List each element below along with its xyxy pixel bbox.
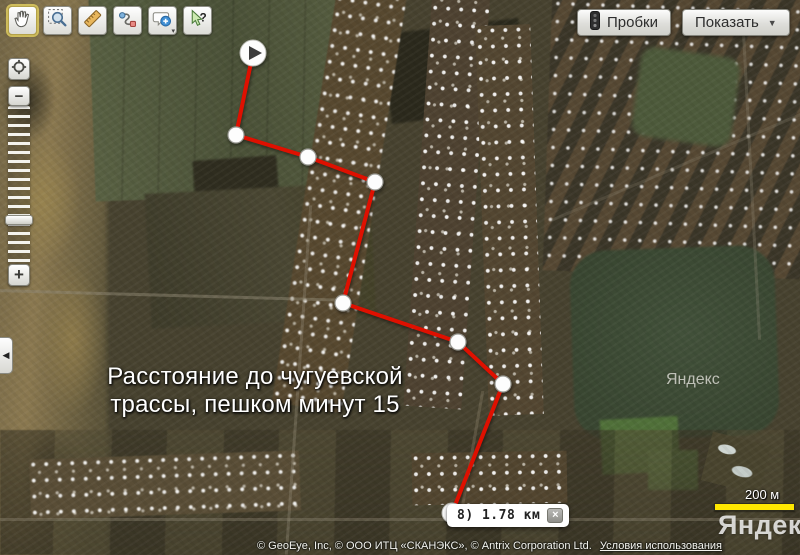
zoom-slider-track[interactable] [8, 106, 30, 264]
help-cursor-icon: ? [187, 8, 208, 34]
panel-collapse-button[interactable]: ◀ [0, 337, 13, 374]
satellite-imagery[interactable] [0, 0, 800, 555]
caption-line-2: трассы, пешком минут 15 [55, 391, 455, 419]
tool-select-zoom-button[interactable] [43, 6, 72, 35]
attribution: © GeoEye, Inc, © ООО ИТЦ «СКАНЭКС», © An… [257, 540, 722, 552]
tool-pan-button[interactable] [8, 6, 37, 35]
svg-text:?: ? [200, 12, 207, 24]
caption-line-1: Расстояние до чугуевской [55, 363, 455, 391]
scale-label: 200 м [745, 487, 779, 502]
zoom-out-button[interactable]: − [8, 86, 30, 106]
show-button-label: Показать [695, 14, 759, 31]
tool-help-button[interactable]: ? [183, 6, 212, 35]
yandex-logo: Яндекс [718, 510, 800, 541]
traffic-light-icon [590, 11, 600, 34]
yandex-map-watermark: Яндекс [666, 371, 720, 389]
close-icon[interactable]: × [547, 508, 563, 523]
zoom-in-button[interactable]: + [8, 264, 30, 286]
ruler-icon [82, 8, 103, 34]
route-icon [117, 8, 138, 34]
locate-button[interactable] [8, 58, 30, 80]
locate-icon [11, 59, 27, 80]
zoom-slider-handle[interactable] [5, 215, 33, 225]
terrain-vignette [0, 0, 800, 555]
hand-icon [12, 8, 33, 34]
route-distance-balloon: 8) 1.78 км × [447, 504, 569, 527]
tool-route-button[interactable] [113, 6, 142, 35]
terms-of-use-link[interactable]: Условия использования [600, 540, 722, 552]
copyright-text: © GeoEye, Inc, © ООО ИТЦ «СКАНЭКС», © An… [257, 540, 592, 552]
route-distance-label: 8) 1.78 км [457, 508, 540, 523]
show-dropdown-button[interactable]: Показать ▼ [682, 9, 790, 36]
tool-add-comment-button[interactable]: ▾ [148, 6, 177, 35]
chevron-down-icon: ▾ [171, 28, 175, 35]
chevron-down-icon: ▼ [768, 18, 777, 28]
magnifier-icon [47, 8, 68, 34]
map-viewport: Яндекс Расстояние до чугуевской трассы, … [0, 0, 800, 555]
distance-caption: Расстояние до чугуевской трассы, пешком … [55, 363, 455, 419]
scale-bar [714, 503, 795, 511]
tool-ruler-button[interactable] [78, 6, 107, 35]
balloon-plus-icon [152, 8, 173, 34]
traffic-button-label: Пробки [607, 14, 658, 31]
traffic-button[interactable]: Пробки [577, 9, 671, 36]
chevron-left-icon: ◀ [3, 350, 10, 361]
